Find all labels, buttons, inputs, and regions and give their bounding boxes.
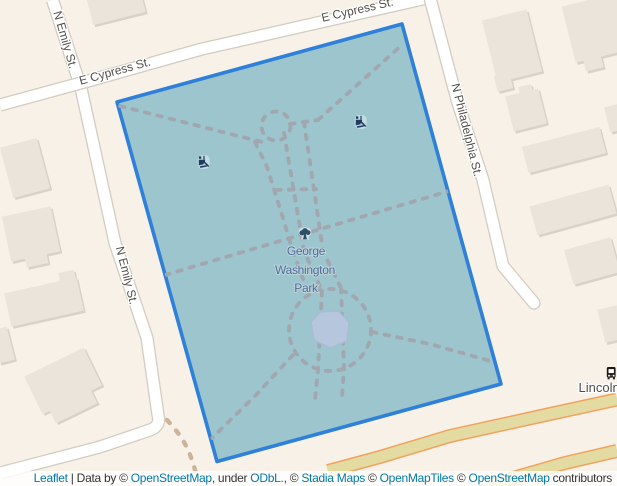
svg-text:Park: Park bbox=[294, 281, 319, 295]
svg-text:N Philadelphia St.: N Philadelphia St. bbox=[448, 82, 485, 178]
svg-text:Washington: Washington bbox=[275, 263, 335, 277]
svg-text:N Emily St.: N Emily St. bbox=[113, 245, 141, 306]
svg-text:N Emily St.: N Emily St. bbox=[50, 9, 80, 70]
svg-text:George: George bbox=[287, 244, 326, 258]
svg-text:Lincoln H: Lincoln H bbox=[579, 380, 617, 395]
svg-text:E Cypress St.: E Cypress St. bbox=[78, 55, 152, 88]
